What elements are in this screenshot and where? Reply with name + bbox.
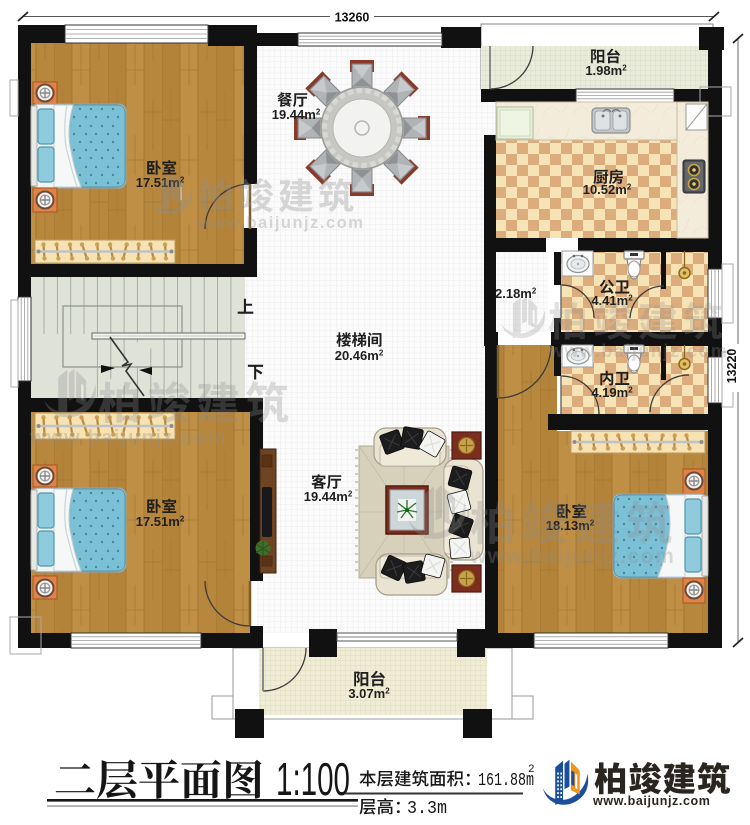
svg-text:www.baijunjz.com: www.baijunjz.com [29, 427, 227, 449]
svg-text:www.baijunjz.com: www.baijunjz.com [197, 214, 364, 232]
svg-text:www.baijunjz.com: www.baijunjz.com [548, 341, 728, 361]
svg-text:1:100: 1:100 [276, 753, 350, 805]
svg-text:13260: 13260 [335, 11, 370, 25]
svg-text:4.41m2: 4.41m2 [591, 293, 633, 308]
svg-text:19.44m2: 19.44m2 [272, 107, 321, 122]
svg-text:3.07m2: 3.07m2 [348, 686, 390, 701]
svg-text:2: 2 [528, 764, 535, 776]
svg-text:17.51m2: 17.51m2 [136, 514, 185, 529]
svg-text:www.baijunjz.com: www.baijunjz.com [469, 545, 675, 568]
svg-text:1.98m2: 1.98m2 [585, 63, 627, 78]
svg-text:10.52m2: 10.52m2 [583, 182, 632, 197]
svg-text:2.18m2: 2.18m2 [495, 286, 537, 301]
svg-text:19.44m2: 19.44m2 [304, 489, 353, 504]
svg-text:www.baijunjz.com: www.baijunjz.com [592, 794, 710, 808]
svg-text:4.19m2: 4.19m2 [591, 385, 633, 400]
svg-text:20.46m2: 20.46m2 [335, 348, 384, 363]
svg-text:161.88m: 161.88m [478, 771, 534, 791]
svg-text:3.3m: 3.3m [407, 799, 447, 819]
